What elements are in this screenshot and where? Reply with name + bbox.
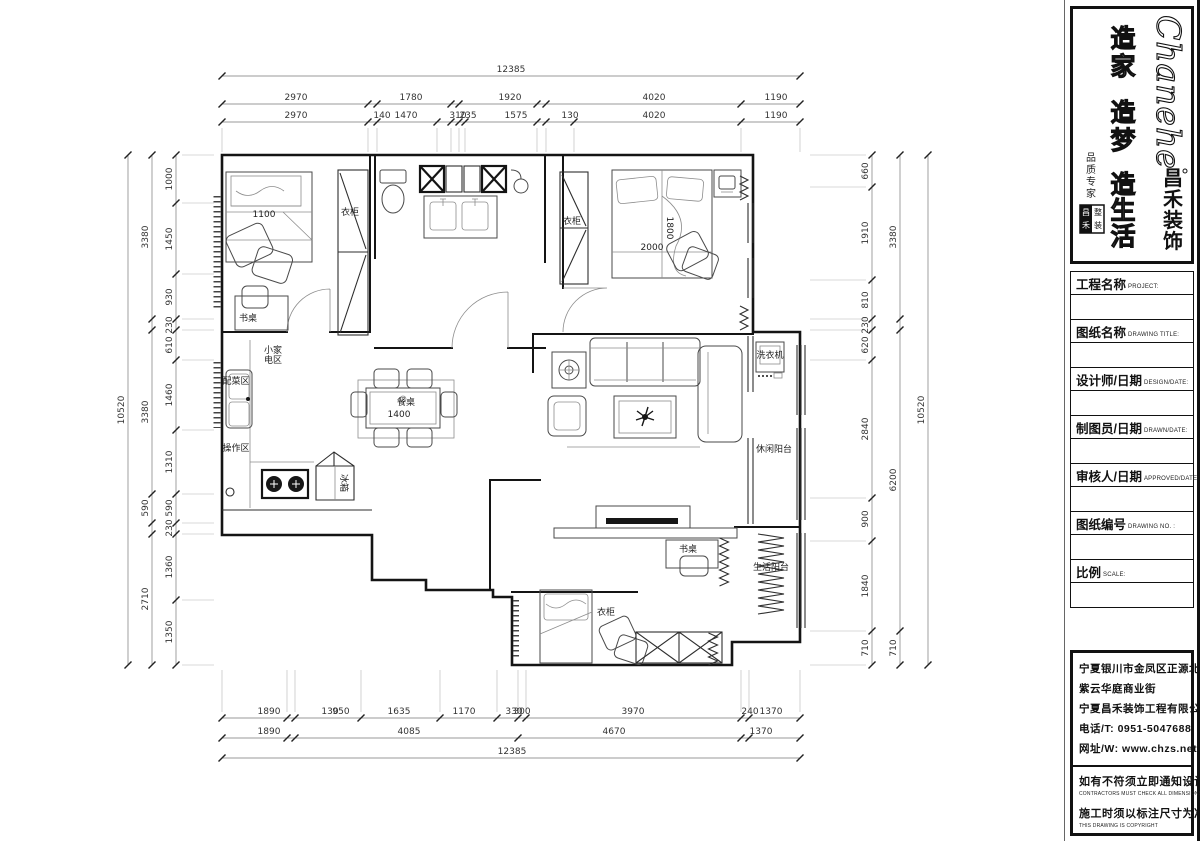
slogan-char: 造	[1110, 24, 1135, 53]
dimension-label: 1780	[400, 93, 423, 103]
walls	[222, 155, 800, 665]
desk-chair	[242, 286, 268, 308]
dimension-label: 1170	[453, 707, 476, 717]
sofa	[590, 338, 700, 386]
field-label-cn: 图纸名称	[1076, 322, 1126, 341]
dimension-label: 1370	[750, 727, 773, 737]
dimension-label: 1350	[165, 620, 175, 643]
coffee-table	[614, 396, 676, 438]
dimension-label: 3380	[141, 400, 151, 423]
company-address-2: 紫云华庭商业街	[1079, 679, 1186, 699]
dimension-label: 1840	[861, 574, 871, 597]
bedroom1-furniture	[224, 170, 368, 335]
dimension-label: 4670	[603, 727, 626, 737]
room-label: 1800	[664, 217, 674, 240]
doors	[287, 288, 607, 348]
dimension-label: 930	[165, 288, 175, 305]
dimension-label: 2840	[861, 417, 871, 440]
signature-char: 专	[1086, 175, 1096, 188]
tv-screen	[606, 518, 678, 524]
room-label: 洗衣机	[756, 349, 783, 361]
floor-plan-svg: 1238529701780192040201190297014014703102…	[0, 0, 1064, 841]
dimension-label: 1635	[388, 707, 411, 717]
bathroom-fixtures	[380, 166, 528, 238]
wardrobe	[560, 172, 588, 284]
titleblock-field-label-6: 比例SCALE:	[1070, 559, 1194, 584]
room-label: 书桌	[239, 312, 257, 324]
dimension-label: 235	[459, 111, 476, 121]
dimension-label: 1190	[765, 111, 788, 121]
interior-wall	[533, 334, 753, 372]
bed	[540, 590, 592, 663]
dimension-label: 950	[332, 707, 349, 717]
signature-char: 质	[1086, 164, 1096, 176]
room-label: 1400	[388, 410, 411, 420]
coil-symbol	[758, 534, 784, 614]
dimension-label: 710	[889, 639, 899, 656]
side-table	[552, 352, 586, 388]
outer-wall	[222, 155, 800, 665]
company-logo: Chanehe 昌 禾 装 饰 造 家 造 梦 造 生 活 品 质 专 家 昌 …	[1070, 6, 1194, 264]
room-label: 操作区	[222, 442, 249, 454]
coil-symbol	[740, 306, 748, 330]
door-arc	[452, 292, 508, 348]
blanket	[540, 600, 592, 634]
dimension-label: 4020	[643, 93, 666, 103]
field-label-en: SCALE:	[1103, 572, 1126, 578]
room-label: 衣柜	[341, 206, 359, 218]
notice-1-en: CONTRACTORS MUST CHECK ALL DIMENSIONS ON…	[1079, 791, 1186, 797]
chair	[407, 369, 432, 388]
dimension-label: 810	[861, 291, 871, 308]
dimension-label: 1890	[258, 707, 281, 717]
dimension-label: 4020	[643, 111, 666, 121]
dimension-label: 130	[561, 111, 578, 121]
dimension-label: 6200	[889, 468, 899, 491]
room-label: 餐桌	[397, 396, 415, 408]
armchair	[598, 615, 638, 652]
titleblock-field-value-6	[1070, 582, 1194, 608]
dimension-label: 1370	[760, 707, 783, 717]
dimension-label: 610	[165, 336, 175, 353]
dimension-label: 230	[165, 519, 175, 536]
titleblock-field-value-1	[1070, 342, 1194, 368]
stove	[262, 470, 308, 498]
dimension-label: 1360	[165, 555, 175, 578]
titleblock-field-value-4	[1070, 486, 1194, 512]
dimension-label: 590	[141, 499, 151, 516]
titleblock-field-label-4: 审核人/日期APPROVED/DATE:	[1070, 463, 1194, 488]
signature-char: 品	[1086, 152, 1096, 164]
coil-symbol	[709, 633, 718, 665]
field-label-en: DRAWING TITLE:	[1128, 332, 1179, 338]
titleblock-field-label-0: 工程名称PROJECT:	[1070, 271, 1194, 296]
svg-text:昌: 昌	[1082, 208, 1090, 217]
door-arc	[287, 289, 330, 332]
dimension-label: 660	[861, 162, 871, 179]
titleblock-field-value-3	[1070, 438, 1194, 464]
title-block-fields: 工程名称PROJECT:图纸名称DRAWING TITLE:设计师/日期DESI…	[1070, 272, 1194, 608]
dimension-label: 230	[165, 316, 175, 333]
room-label: 小家	[264, 344, 282, 356]
dimension-label: 3970	[622, 707, 645, 717]
field-label-cn: 工程名称	[1076, 274, 1126, 293]
company-info-box: 宁夏银川市金凤区正源北街 紫云华庭商业街 宁夏昌禾装饰工程有限公司 电话/T: …	[1070, 650, 1194, 836]
floor-drain	[226, 488, 234, 496]
dining-table	[366, 388, 440, 428]
field-label-cn: 设计师/日期	[1076, 370, 1142, 389]
dimension-label: 2710	[141, 587, 151, 610]
room-label: 休闲阳台	[756, 443, 792, 455]
balcony-window	[797, 345, 805, 628]
vanity	[424, 196, 497, 238]
titleblock-field-value-5	[1070, 534, 1194, 560]
dimension-label: 300	[513, 707, 530, 717]
notice-2-en: THIS DRAWING IS COPYRIGHT	[1079, 823, 1186, 829]
dimension-label: 12385	[498, 747, 527, 757]
shelf	[554, 528, 737, 538]
kitchen-fixtures	[226, 340, 354, 508]
divider	[1073, 765, 1191, 767]
room-label: 1100	[253, 210, 276, 220]
shower-head-icon	[511, 170, 528, 193]
pillow	[666, 176, 704, 201]
dimension-label: 2970	[285, 93, 308, 103]
chair	[407, 428, 432, 447]
room-label: 衣柜	[597, 606, 615, 618]
dimension-label: 4085	[398, 727, 421, 737]
dimension-label: 1890	[258, 727, 281, 737]
room-label: 生活阳台	[753, 561, 789, 573]
pillow-fold	[231, 187, 301, 207]
dimension-label: 2970	[285, 111, 308, 121]
field-label-cn: 审核人/日期	[1076, 466, 1142, 485]
room-label: 配菜区	[222, 375, 249, 387]
pillow	[231, 176, 301, 206]
interior-wall	[490, 480, 540, 590]
bedroom2-furniture	[560, 170, 741, 284]
field-label-cn: 制图员/日期	[1076, 418, 1142, 437]
logo-art: Chanehe 昌 禾 装 饰 造 家 造 梦 造 生 活 品 质 专 家 昌 …	[1073, 9, 1191, 261]
field-label-cn: 图纸编号	[1076, 514, 1126, 533]
notice-1-cn: 如有不符须立即通知设计人员	[1079, 773, 1186, 789]
company-address-1: 宁夏银川市金凤区正源北街	[1079, 659, 1186, 679]
nightstand	[714, 170, 741, 197]
notice-2-cn: 施工时须以标注尺寸为准	[1079, 805, 1186, 821]
company-name: 宁夏昌禾装饰工程有限公司	[1079, 699, 1186, 719]
slogan-char: 家	[1110, 52, 1135, 81]
wardrobe	[338, 170, 368, 335]
title-block-sidebar: Chanehe 昌 禾 装 饰 造 家 造 梦 造 生 活 品 质 专 家 昌 …	[1064, 0, 1200, 841]
dimension-label: 10520	[117, 395, 127, 424]
dimension-label: 3380	[889, 225, 899, 248]
dimension-label: 240	[741, 707, 758, 717]
slogan-char: 梦	[1110, 126, 1136, 155]
tv-console	[596, 506, 690, 528]
floor-plan-drawing: 1238529701780192040201190297014014703102…	[0, 0, 1064, 841]
titleblock-field-value-2	[1070, 390, 1194, 416]
titleblock-field-label-3: 制图员/日期DRAWN/DATE:	[1070, 415, 1194, 440]
pillow	[616, 176, 658, 204]
svg-text:禾: 禾	[1082, 221, 1090, 230]
armchair	[548, 396, 586, 436]
toilet-tank	[380, 170, 406, 183]
field-label-en: PROJECT:	[1128, 284, 1159, 290]
chair	[351, 392, 367, 417]
company-phone: 电话/T: 0951-5047688	[1079, 719, 1186, 739]
coil-symbol	[720, 538, 729, 586]
dimension-label: 230	[861, 316, 871, 333]
dimension-label: 620	[861, 336, 871, 353]
dimension-label: 12385	[497, 65, 526, 75]
room-label: 冰箱	[338, 474, 350, 492]
desk	[235, 296, 288, 330]
dimension-label: 1190	[765, 93, 788, 103]
shaft-box	[420, 166, 506, 192]
dimension-label: 10520	[917, 395, 927, 424]
brand-char: 饰	[1163, 229, 1183, 253]
room-label: 衣柜	[563, 215, 581, 227]
room-label: 书桌	[679, 543, 697, 555]
desk-chair	[680, 556, 708, 576]
dimension-label: 1450	[165, 227, 175, 250]
wardrobe	[636, 632, 722, 663]
study-furniture	[554, 506, 737, 576]
slogan-char: 生	[1110, 196, 1135, 225]
dimension-label: 1470	[395, 111, 418, 121]
field-label-en: DRAWN/DATE:	[1144, 428, 1188, 434]
seal-stamp-icon: 昌 禾 整 装	[1080, 205, 1104, 233]
titleblock-field-label-2: 设计师/日期DESIGN/DATE:	[1070, 367, 1194, 392]
company-website: 网址/W: www.chzs.net	[1079, 739, 1186, 759]
slogan-char: 活	[1110, 222, 1135, 251]
dimension-label: 1910	[861, 221, 871, 244]
dimension-label: 1460	[165, 383, 175, 406]
slogan-char: 造	[1110, 98, 1135, 127]
dimension-label: 710	[861, 639, 871, 656]
chair	[374, 369, 399, 388]
titleblock-field-label-5: 图纸编号DRAWING NO. :	[1070, 511, 1194, 536]
brand-name-en: Chanehe	[1149, 15, 1188, 170]
dimension-label: 590	[165, 499, 175, 516]
field-label-cn: 比例	[1076, 562, 1101, 581]
toilet-bowl	[382, 185, 404, 213]
chair	[441, 392, 457, 417]
signature-char: 家	[1086, 187, 1096, 200]
living-room-furniture	[548, 338, 784, 447]
armchair	[613, 634, 649, 666]
field-label-en: DRAWING NO. :	[1128, 524, 1175, 530]
armchair	[681, 245, 720, 280]
titleblock-field-label-1: 图纸名称DRAWING TITLE:	[1070, 319, 1194, 344]
field-label-en: APPROVED/DATE:	[1144, 476, 1199, 482]
chaise-lounge	[698, 346, 742, 442]
balcony-inner-glass	[748, 336, 753, 524]
dimension-label: 1575	[505, 111, 528, 121]
dimension-label: 1310	[165, 450, 175, 473]
dining-furniture	[351, 369, 457, 447]
slogan-char: 造	[1110, 170, 1135, 199]
room-label: 电区	[264, 354, 282, 366]
dimension-label: 3380	[141, 225, 151, 248]
svg-text:整: 整	[1094, 207, 1102, 217]
dimension-label: 900	[861, 510, 871, 527]
dimension-label: 140	[373, 111, 390, 121]
chair	[374, 428, 399, 447]
door-arc	[563, 288, 607, 332]
dimension-label: 1920	[499, 93, 522, 103]
room-label: 2000	[641, 243, 664, 253]
titleblock-field-value-0	[1070, 294, 1194, 320]
dimension-label: 1000	[165, 167, 175, 190]
svg-text:装: 装	[1094, 220, 1102, 230]
bedroom3-furniture	[540, 590, 722, 666]
field-label-en: DESIGN/DATE:	[1144, 380, 1188, 386]
